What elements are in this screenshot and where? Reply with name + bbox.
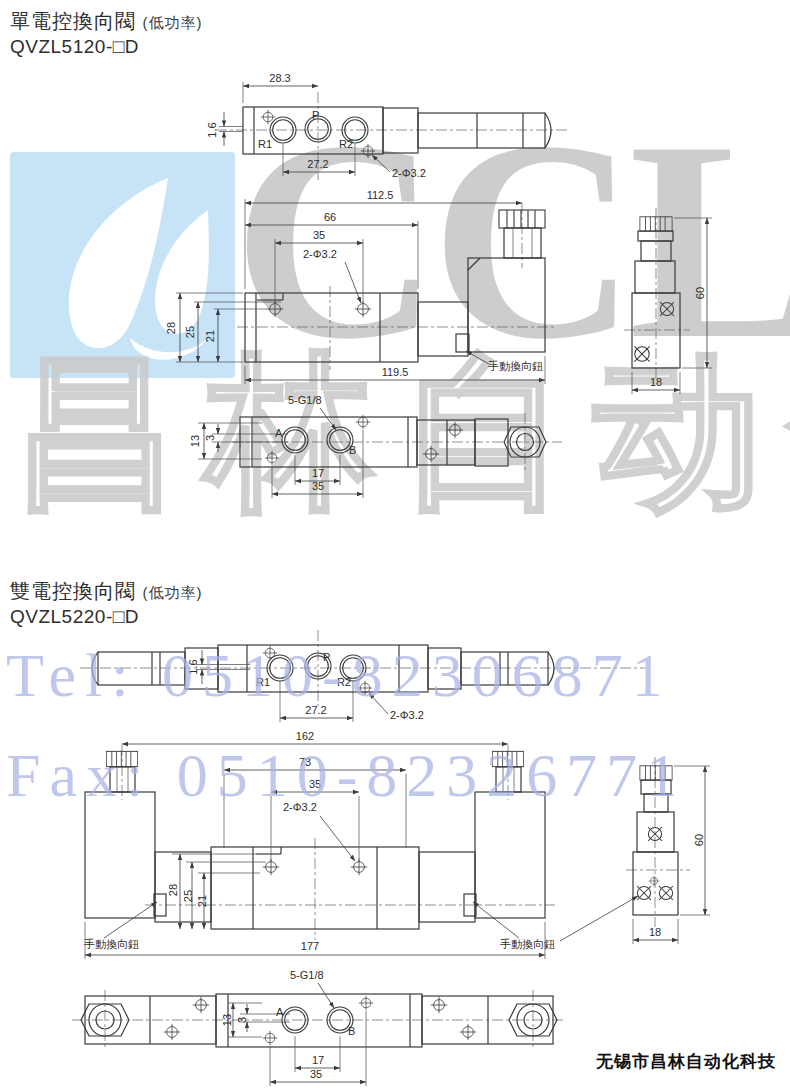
dim-holes: 2-Φ3.2: [303, 248, 337, 260]
manual-override-label-left: 手動換向鈕: [84, 938, 139, 950]
valve2-bottom-view: 5-G1/8 13 3 A B 17 35: [72, 969, 565, 1086]
datasheet-page: CCLair 昌林自动化: [0, 0, 790, 1088]
dim-35: 35: [310, 1068, 322, 1080]
thread-label: 5-G1/8: [290, 969, 324, 981]
dim-body: 66: [324, 211, 336, 223]
technical-drawings: 28.3 1.6 27.2 2-Φ3.2 R1 P R2: [0, 0, 790, 1088]
dim-h21: 21: [196, 895, 208, 907]
dim-span: 35: [313, 229, 325, 241]
port-label-r2: R2: [339, 138, 353, 150]
dim-h3: 3: [236, 1017, 248, 1023]
dim-offset: 1.6: [206, 122, 218, 137]
port-label-a: A: [275, 427, 283, 439]
valve1-side-view: 60 18: [624, 208, 712, 394]
dim-17: 17: [312, 1054, 324, 1066]
dim-height: 60: [693, 834, 705, 846]
section1-power-note: (低功率): [143, 14, 203, 31]
dim-17: 17: [312, 467, 324, 479]
valve1-front-view: 112.5 66 35 2-Φ3.2 28 25 21 119.5: [165, 189, 556, 384]
section1-title: 單電控換向閥 (低功率): [10, 8, 203, 35]
dim-top-width: 28.3: [269, 72, 290, 84]
valve1-bottom-view: 5-G1/8 13 3 A B 17 35: [189, 394, 562, 498]
dim-total: 177: [301, 940, 319, 952]
manual-override-label: 手動換向鈕: [488, 360, 543, 372]
dim-h21: 21: [204, 330, 216, 342]
dim-35: 35: [312, 480, 324, 492]
dim-h28: 28: [165, 322, 177, 334]
dim-h13: 13: [221, 1014, 233, 1026]
dim-h3: 3: [204, 435, 216, 441]
valve1-top-view: 28.3 1.6 27.2 2-Φ3.2 R1 P R2: [206, 72, 570, 180]
manual-override-label-right: 手動換向鈕: [500, 938, 555, 950]
port-label-a: A: [276, 1006, 284, 1018]
dim-total: 119.5: [382, 366, 409, 378]
dim-width: 18: [650, 376, 662, 388]
dim-holes: 2-Φ3.2: [392, 167, 426, 179]
dim-pitch: 27.2: [307, 158, 328, 170]
dim-width: 18: [649, 926, 661, 938]
dim-overall: 112.5: [367, 189, 394, 201]
dim-height: 60: [694, 287, 706, 299]
fax-watermark: Fax: 0510-82326771: [6, 740, 790, 811]
dim-h28: 28: [167, 884, 179, 896]
port-label-b: B: [349, 444, 356, 456]
port-label-p: P: [312, 109, 319, 121]
dim-h13: 13: [189, 435, 201, 447]
section2-power-note: (低功率): [143, 584, 203, 601]
tel-watermark: Tel: 0510-82306871: [6, 640, 790, 711]
section2-model: QVZL5220-□D: [10, 606, 139, 628]
dim-h25: 25: [184, 326, 196, 338]
port-label-r1: R1: [258, 138, 272, 150]
dim-h25: 25: [182, 890, 194, 902]
section1-title-text: 單電控換向閥: [10, 10, 136, 32]
port-label-b: B: [348, 1025, 355, 1037]
section2-title-text: 雙電控換向閥: [10, 580, 136, 602]
company-footer: 无锡市昌林自动化科技: [596, 1050, 776, 1073]
section2-title: 雙電控換向閥 (低功率): [10, 578, 203, 605]
thread-label: 5-G1/8: [288, 394, 322, 406]
section1-model: QVZL5120-□D: [10, 36, 139, 58]
